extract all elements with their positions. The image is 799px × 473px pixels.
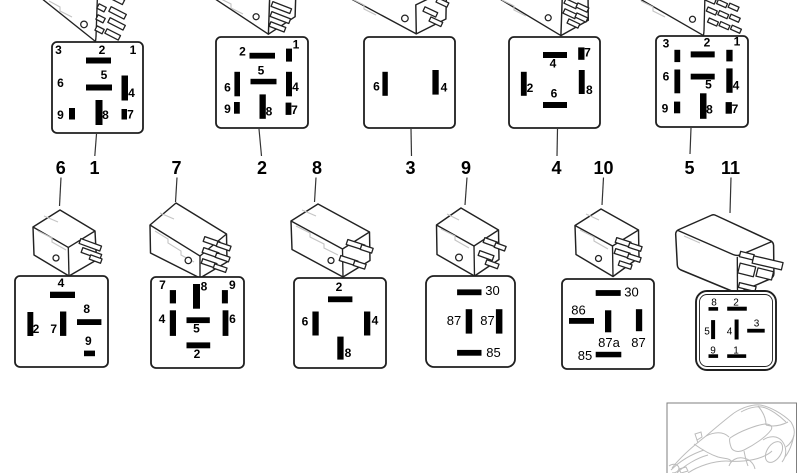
svg-text:4: 4 [159, 312, 166, 326]
svg-text:6: 6 [224, 81, 231, 95]
svg-text:8: 8 [345, 346, 352, 360]
svg-text:9: 9 [662, 102, 669, 116]
svg-text:8: 8 [83, 302, 90, 316]
svg-text:7: 7 [291, 103, 298, 117]
svg-text:8: 8 [102, 108, 109, 122]
svg-text:3: 3 [754, 319, 760, 330]
svg-text:2: 2 [99, 43, 106, 57]
svg-text:4: 4 [733, 79, 740, 93]
svg-text:9: 9 [85, 334, 92, 348]
svg-text:7: 7 [584, 46, 591, 60]
svg-text:2: 2 [527, 81, 534, 95]
svg-text:85: 85 [578, 348, 592, 363]
svg-text:3: 3 [663, 37, 670, 51]
svg-text:5: 5 [704, 327, 710, 338]
svg-text:8: 8 [586, 83, 593, 97]
svg-text:6: 6 [57, 76, 64, 90]
svg-text:3: 3 [405, 158, 415, 178]
svg-text:11: 11 [721, 158, 740, 178]
svg-text:5: 5 [101, 68, 108, 82]
svg-text:87a: 87a [598, 335, 620, 350]
svg-text:2: 2 [704, 36, 711, 50]
svg-text:5: 5 [258, 64, 265, 78]
svg-text:6: 6 [663, 70, 670, 84]
svg-text:2: 2 [336, 280, 343, 294]
svg-text:1: 1 [293, 38, 300, 52]
svg-text:7: 7 [732, 102, 739, 116]
svg-text:8: 8 [711, 298, 717, 309]
svg-text:4: 4 [550, 57, 557, 71]
svg-text:4: 4 [441, 81, 448, 95]
svg-text:85: 85 [486, 345, 500, 360]
svg-text:6: 6 [373, 80, 380, 94]
svg-text:1: 1 [89, 158, 99, 178]
svg-text:4: 4 [551, 158, 561, 178]
svg-text:87: 87 [480, 313, 494, 328]
svg-text:87: 87 [631, 335, 645, 350]
svg-text:1: 1 [130, 43, 137, 57]
svg-text:4: 4 [58, 276, 65, 290]
svg-text:30: 30 [485, 283, 499, 298]
svg-text:2: 2 [257, 158, 267, 178]
svg-text:1: 1 [734, 35, 741, 49]
svg-text:6: 6 [302, 315, 309, 329]
svg-text:2: 2 [194, 347, 201, 361]
svg-text:10: 10 [593, 158, 613, 178]
svg-text:8: 8 [312, 158, 322, 178]
svg-text:5: 5 [684, 158, 694, 178]
svg-text:4: 4 [727, 327, 733, 338]
svg-text:9: 9 [224, 102, 231, 116]
svg-text:86: 86 [571, 303, 585, 318]
svg-text:7: 7 [127, 108, 134, 122]
svg-text:2: 2 [33, 322, 40, 336]
svg-text:5: 5 [193, 322, 200, 336]
svg-text:5: 5 [705, 78, 712, 92]
svg-text:6: 6 [551, 87, 558, 101]
svg-text:7: 7 [171, 158, 181, 178]
svg-text:3: 3 [55, 43, 62, 57]
svg-text:4: 4 [128, 86, 135, 100]
svg-text:8: 8 [706, 103, 713, 117]
svg-text:30: 30 [624, 285, 638, 300]
svg-text:87: 87 [447, 313, 461, 328]
svg-text:8: 8 [201, 280, 208, 294]
svg-text:8: 8 [266, 105, 273, 119]
svg-text:9: 9 [57, 108, 64, 122]
svg-text:6: 6 [56, 158, 66, 178]
svg-text:6: 6 [229, 312, 236, 326]
svg-text:2: 2 [239, 45, 246, 59]
svg-text:7: 7 [159, 278, 166, 292]
svg-text:9: 9 [461, 158, 471, 178]
svg-text:4: 4 [292, 80, 299, 94]
svg-text:7: 7 [50, 322, 57, 336]
svg-text:9: 9 [229, 278, 236, 292]
svg-text:4: 4 [372, 314, 379, 328]
